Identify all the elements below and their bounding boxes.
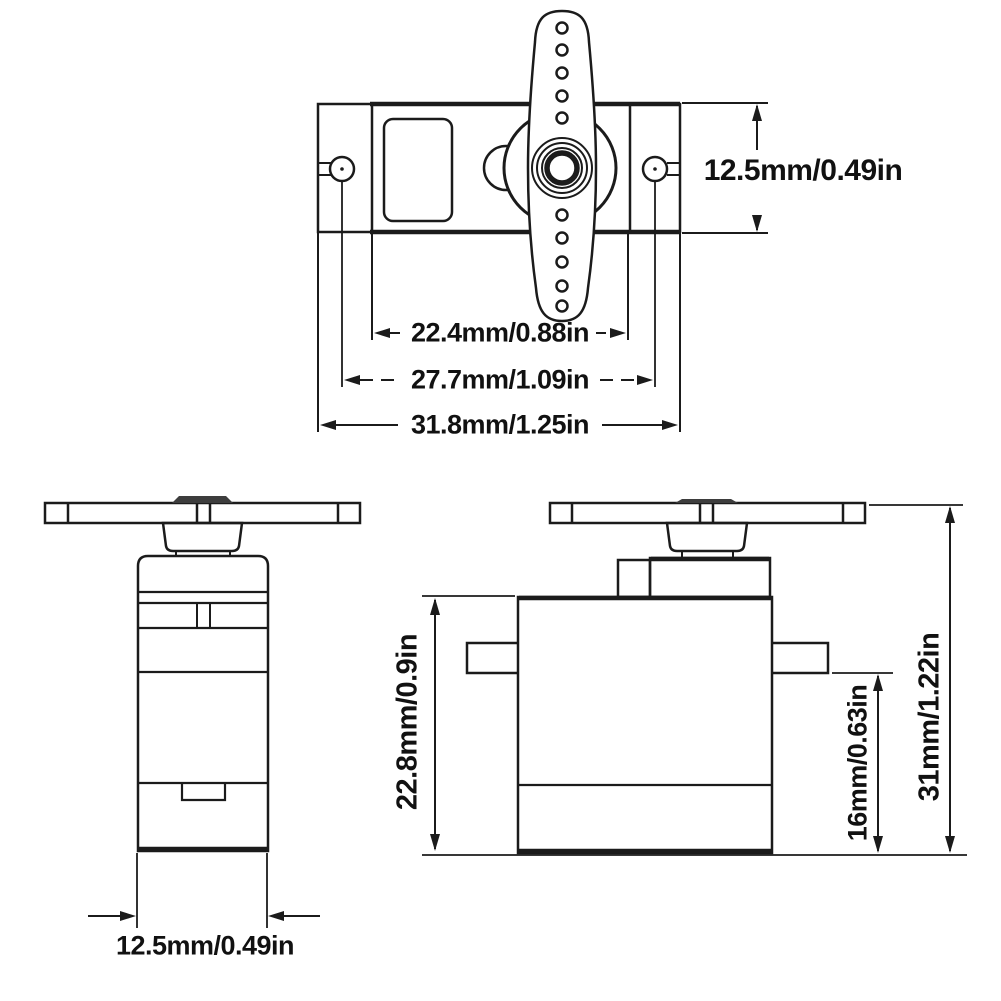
mounting-flange-left [467, 643, 518, 673]
body-width-label: 22.4mm/0.88in [411, 320, 589, 347]
front-horn-bar [45, 503, 360, 523]
side-horn-bar [550, 503, 865, 523]
diagram-linework [0, 0, 1001, 1001]
total-height-label: 31mm/1.22in [916, 633, 945, 802]
screw-hole-right [643, 157, 680, 181]
side-shaft-cap [675, 499, 738, 503]
gear-housing [650, 558, 770, 597]
servo-horn [528, 11, 596, 321]
side-view-servo [467, 499, 865, 853]
body-depth-label: 12.5mm/0.49in [116, 933, 294, 960]
side-horn-hub [667, 523, 747, 551]
screw-hole-left [318, 157, 354, 181]
body-height-label: 22.8mm/0.9in [394, 634, 423, 810]
dim-body-depth [88, 853, 320, 928]
servo-dimension-diagram: 12.5mm/0.49in 22.4mm/0.88in 27.7mm/1.09i… [0, 0, 1001, 1001]
mounting-flange-right [772, 643, 828, 673]
side-body [518, 597, 772, 853]
front-horn-hub [163, 523, 242, 551]
gear-housing-step [618, 560, 650, 597]
front-view-servo [45, 496, 360, 851]
front-body [138, 556, 268, 851]
plate-height-label: 12.5mm/0.49in [704, 156, 903, 186]
plate-cutout [384, 119, 452, 221]
dim-body-height [422, 596, 515, 851]
mount-hole-span-label: 27.7mm/1.09in [411, 367, 589, 394]
bottom-to-flange-label: 16mm/0.63in [845, 685, 872, 842]
front-shaft-cap [172, 496, 233, 503]
plate-width-label: 31.8mm/1.25in [411, 412, 589, 439]
